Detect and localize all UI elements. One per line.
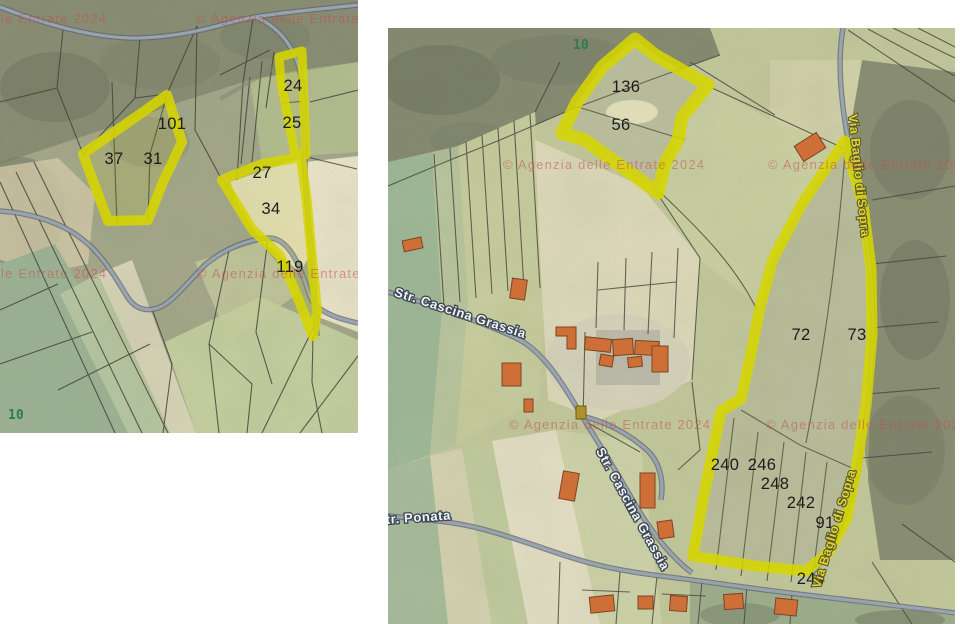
parcel-number-31: 31 <box>144 150 163 168</box>
parcel-number-27: 27 <box>253 164 272 182</box>
parcel-number-34: 34 <box>262 200 281 218</box>
watermark: © Agenzia delle Entrate 2024 <box>503 157 705 172</box>
watermark: © Agenzia delle Entrate 2024 <box>197 266 358 281</box>
right-map-svg: 1013656727324024624824291244Str. Cascina… <box>388 28 955 624</box>
parcel-number-37: 37 <box>105 150 124 168</box>
parcel-number-136: 136 <box>612 78 640 96</box>
parcel-number-240: 240 <box>711 456 739 474</box>
sheet-number: 10 <box>573 38 589 53</box>
watermark: © Agenzia delle Entrate 2024 <box>509 417 711 432</box>
watermark: © Agenzia delle Entrate 2024 <box>766 417 955 432</box>
cadastral-map-right[interactable]: 1013656727324024624824291244Str. Cascina… <box>388 28 955 624</box>
parcel-number-73: 73 <box>848 326 867 344</box>
sheet-number: 10 <box>8 408 24 423</box>
watermark: © Agenzia delle Entrate 2024 <box>0 11 107 26</box>
left-map-svg: 10137312425273411910© Agenzia delle Entr… <box>0 0 358 433</box>
parcel-number-72: 72 <box>792 326 811 344</box>
cadastral-map-left[interactable]: 10137312425273411910© Agenzia delle Entr… <box>0 0 358 433</box>
watermark: © Agenzia delle Entrate 2024 <box>0 266 107 281</box>
parcel-number-56: 56 <box>612 116 631 134</box>
parcel-number-101: 101 <box>158 115 186 133</box>
watermark: © Agenzia delle Entrate 2024 <box>768 157 955 172</box>
parcel-number-246: 246 <box>748 456 776 474</box>
parcel-number-25: 25 <box>283 114 302 132</box>
parcel-number-24: 24 <box>284 77 303 95</box>
parcel-number-242: 242 <box>787 494 815 512</box>
watermark: © Agenzia delle Entrate 2024 <box>196 11 358 26</box>
parcel-number-248: 248 <box>761 475 789 493</box>
page: 10137312425273411910© Agenzia delle Entr… <box>0 0 960 624</box>
